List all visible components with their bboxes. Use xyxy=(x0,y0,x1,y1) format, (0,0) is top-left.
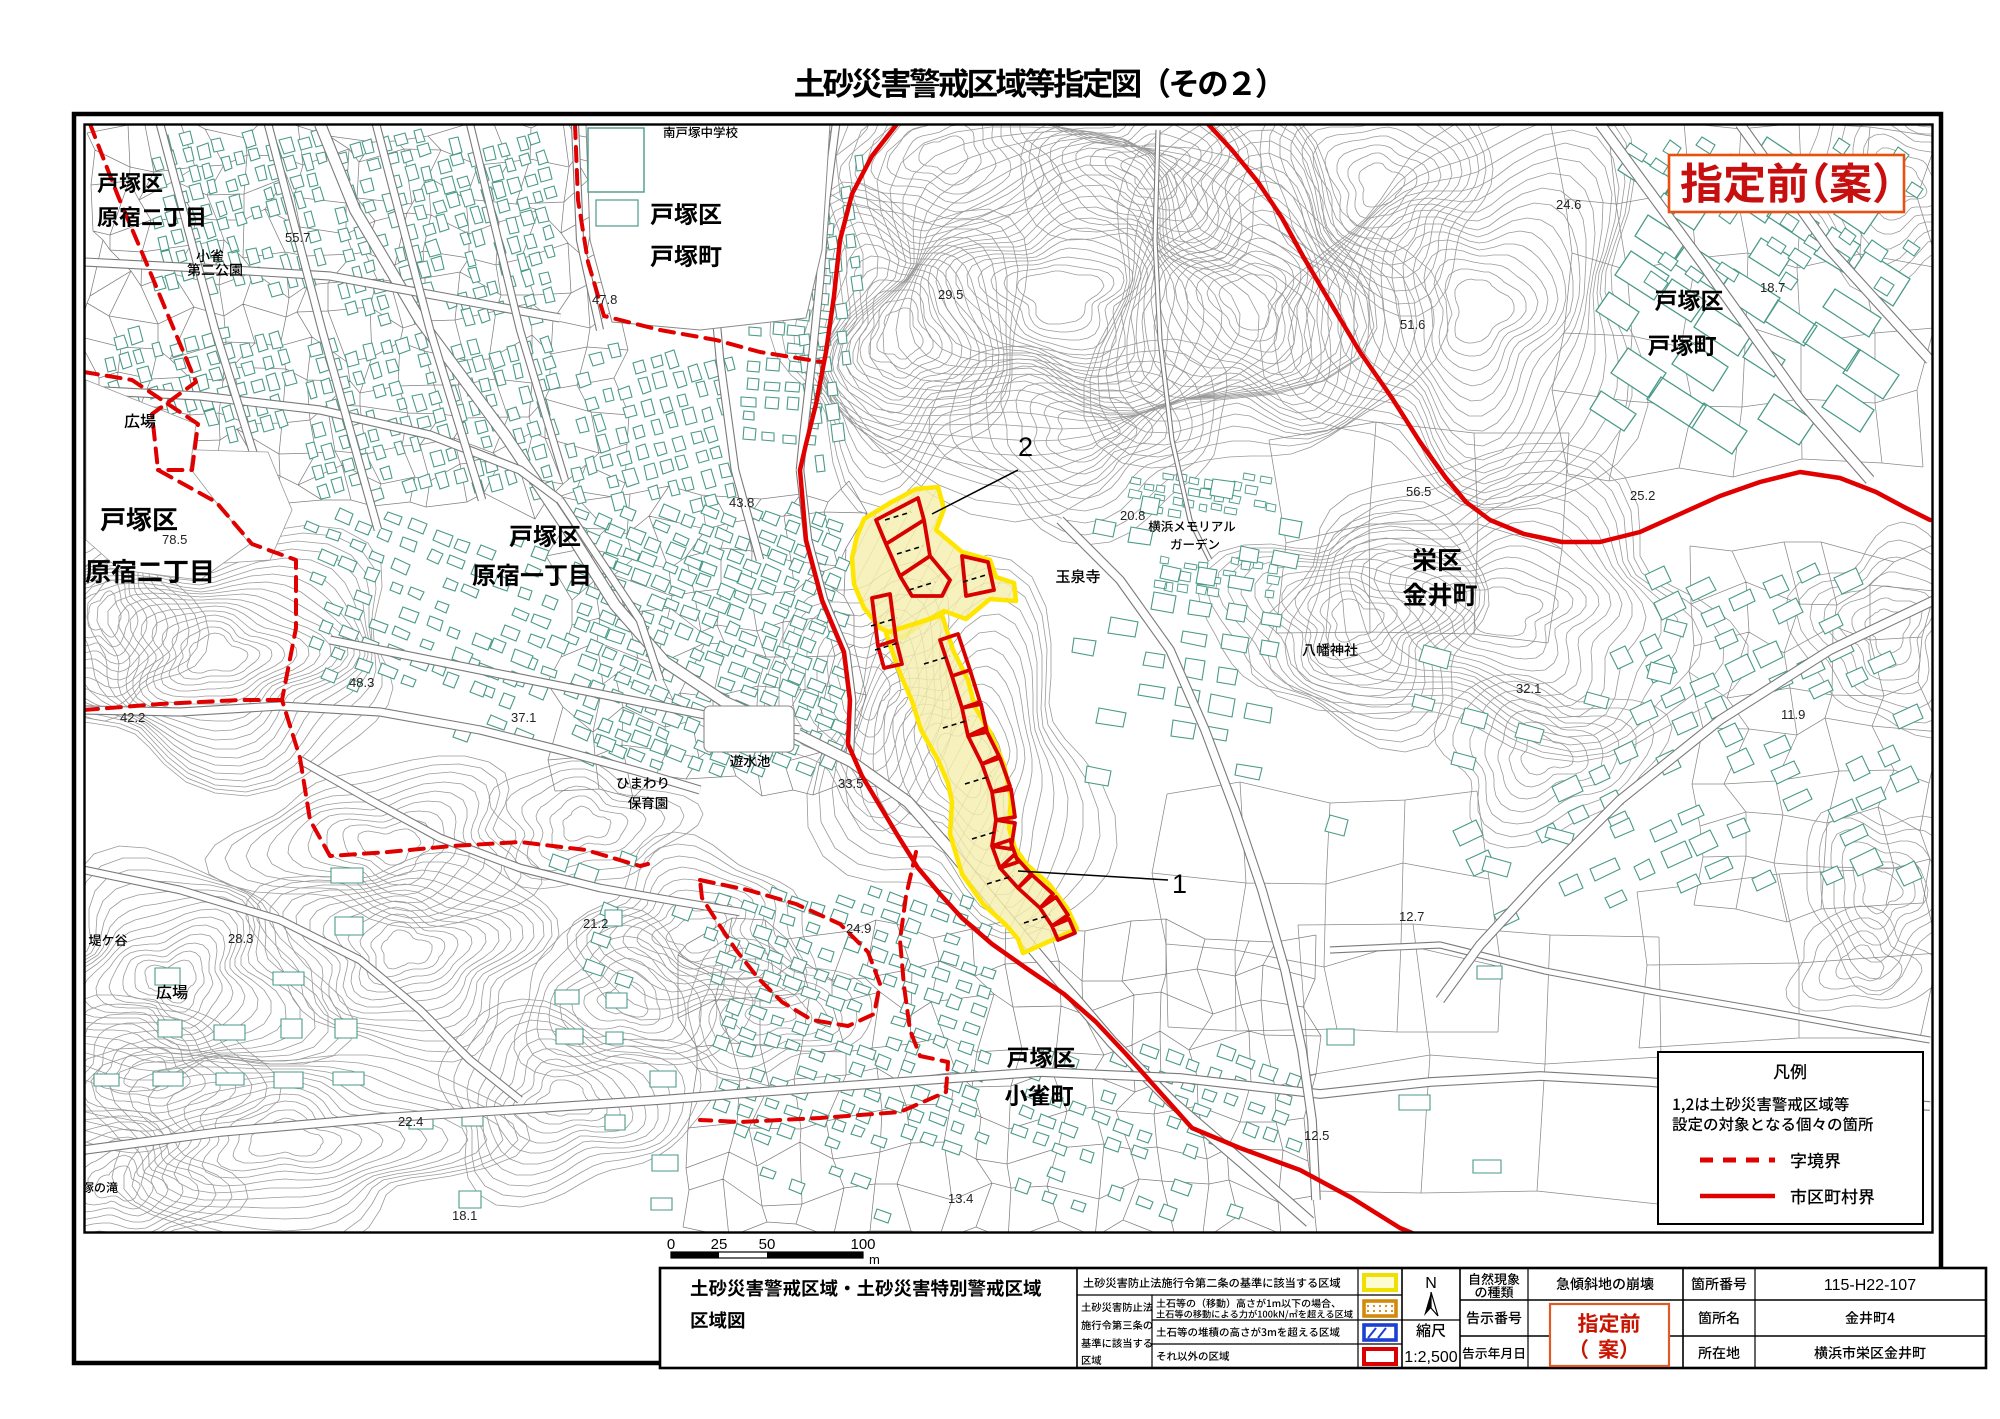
svg-text:22.4: 22.4 xyxy=(398,1114,423,1129)
svg-text:25.2: 25.2 xyxy=(1630,488,1655,503)
svg-text:32.1: 32.1 xyxy=(1516,681,1541,696)
svg-text:13.4: 13.4 xyxy=(948,1191,973,1206)
svg-text:24.6: 24.6 xyxy=(1556,197,1581,212)
svg-text:78.5: 78.5 xyxy=(162,532,187,547)
svg-text:51.6: 51.6 xyxy=(1400,317,1425,332)
svg-text:37.1: 37.1 xyxy=(511,710,536,725)
svg-text:25: 25 xyxy=(711,1236,728,1253)
svg-text:50: 50 xyxy=(759,1236,776,1253)
svg-text:0: 0 xyxy=(667,1236,675,1253)
svg-text:N: N xyxy=(1425,1275,1437,1292)
svg-text:47.8: 47.8 xyxy=(592,292,617,307)
svg-text:m: m xyxy=(869,1252,880,1267)
svg-text:1:2,500: 1:2,500 xyxy=(1404,1349,1457,1366)
svg-text:42.2: 42.2 xyxy=(120,710,145,725)
svg-text:18.7: 18.7 xyxy=(1760,280,1785,295)
svg-text:24.9: 24.9 xyxy=(846,921,871,936)
svg-text:21.2: 21.2 xyxy=(583,916,608,931)
svg-text:43.8: 43.8 xyxy=(729,495,754,510)
svg-text:33.5: 33.5 xyxy=(838,776,863,791)
svg-text:29.5: 29.5 xyxy=(938,287,963,302)
svg-text:100: 100 xyxy=(850,1236,875,1253)
svg-text:56.5: 56.5 xyxy=(1406,484,1431,499)
svg-text:18.1: 18.1 xyxy=(452,1208,477,1223)
svg-text:115-H22-107: 115-H22-107 xyxy=(1824,1277,1916,1294)
svg-text:12.5: 12.5 xyxy=(1304,1128,1329,1143)
svg-text:1: 1 xyxy=(1172,869,1187,899)
svg-text:20.8: 20.8 xyxy=(1120,508,1145,523)
svg-text:48.3: 48.3 xyxy=(349,675,374,690)
svg-text:12.7: 12.7 xyxy=(1399,909,1424,924)
svg-text:28.3: 28.3 xyxy=(228,931,253,946)
svg-text:2: 2 xyxy=(1018,432,1033,462)
svg-text:55.7: 55.7 xyxy=(285,230,310,245)
svg-text:11.9: 11.9 xyxy=(1781,707,1805,722)
